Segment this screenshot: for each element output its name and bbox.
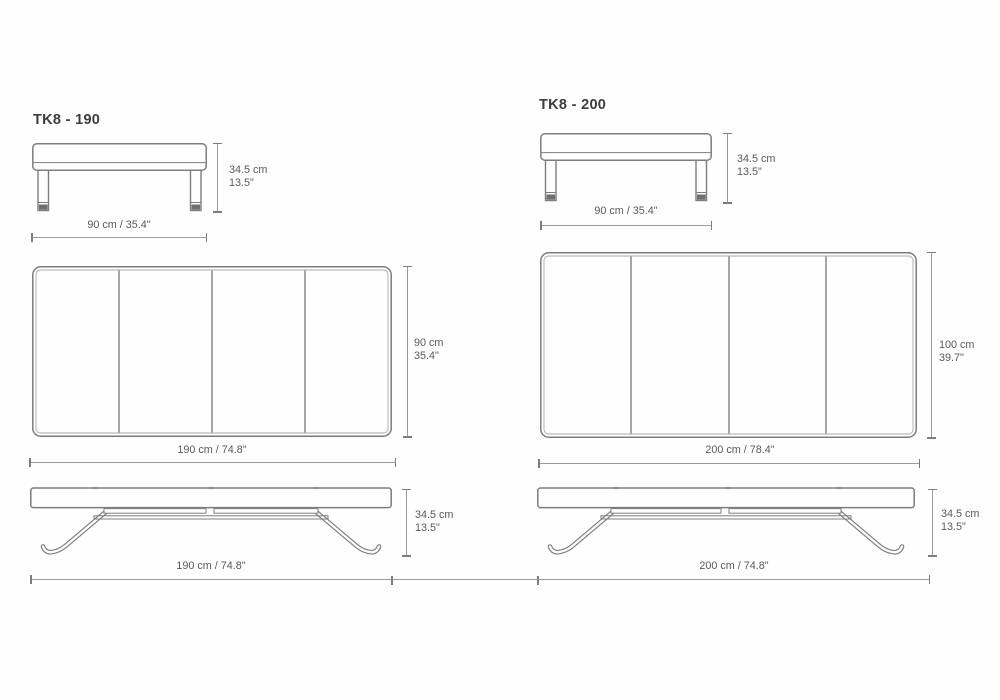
dim-line-front-190-height — [406, 489, 407, 556]
dim-line-side-200-width — [540, 225, 712, 226]
side-200-height-in: 13.5" — [737, 166, 775, 179]
side-view-drawing-200 — [540, 133, 712, 203]
spec-sheet: TK8 - 190 TK8 - 200 — [0, 0, 1000, 700]
dim-tick-front-190-end — [391, 576, 393, 585]
front-190-height-in: 13.5" — [415, 522, 453, 535]
dim-line-side-190-width — [31, 237, 207, 238]
top-200-depth-in: 39.7" — [939, 352, 974, 365]
side-200-height-label: 34.5 cm 13.5" — [737, 153, 775, 179]
top-190-width-label: 190 cm / 74.8" — [177, 444, 246, 457]
dim-line-top-190-depth — [407, 266, 408, 437]
top-view-drawing-190 — [32, 266, 392, 437]
dim-line-side-200-height — [727, 133, 728, 203]
dim-line-top-200-depth — [931, 252, 932, 438]
side-200-width-label: 90 cm / 35.4" — [594, 205, 657, 218]
dim-line-front-overall-width — [30, 579, 930, 580]
product-title-tk8-200: TK8 - 200 — [539, 97, 606, 113]
front-200-height-label: 34.5 cm 13.5" — [941, 508, 979, 534]
top-190-depth-cm: 90 cm — [414, 337, 443, 350]
sled-leg-left — [43, 510, 108, 552]
top-200-depth-label: 100 cm 39.7" — [939, 339, 974, 365]
dim-tick-front-200-start — [537, 576, 539, 585]
top-190-depth-in: 35.4" — [414, 350, 443, 363]
side-200-height-cm: 34.5 cm — [737, 153, 775, 166]
sled-leg-right — [837, 510, 902, 552]
front-200-height-in: 13.5" — [941, 521, 979, 534]
dim-line-side-190-height — [217, 143, 218, 212]
top-view-drawing-200 — [540, 252, 917, 438]
dim-line-top-200-width — [538, 463, 920, 464]
front-190-height-label: 34.5 cm 13.5" — [415, 509, 453, 535]
product-title-tk8-190: TK8 - 190 — [33, 112, 100, 128]
top-200-width-label: 200 cm / 78.4" — [705, 444, 774, 457]
top-200-depth-cm: 100 cm — [939, 339, 974, 352]
side-190-height-cm: 34.5 cm — [229, 164, 267, 177]
front-view-drawing-190 — [30, 486, 392, 558]
sled-leg-right — [314, 510, 379, 552]
front-200-width-label: 200 cm / 74.8" — [699, 560, 768, 573]
front-190-height-cm: 34.5 cm — [415, 509, 453, 522]
front-200-height-cm: 34.5 cm — [941, 508, 979, 521]
sled-leg-left — [550, 510, 615, 552]
top-190-depth-label: 90 cm 35.4" — [414, 337, 443, 363]
side-190-height-label: 34.5 cm 13.5" — [229, 164, 267, 190]
side-190-width-label: 90 cm / 35.4" — [87, 219, 150, 232]
front-190-width-label: 190 cm / 74.8" — [176, 560, 245, 573]
front-view-drawing-200 — [537, 486, 915, 558]
side-190-height-in: 13.5" — [229, 177, 267, 190]
dim-line-top-190-width — [29, 462, 396, 463]
side-view-drawing-190 — [32, 143, 207, 213]
dim-line-front-200-height — [932, 489, 933, 556]
